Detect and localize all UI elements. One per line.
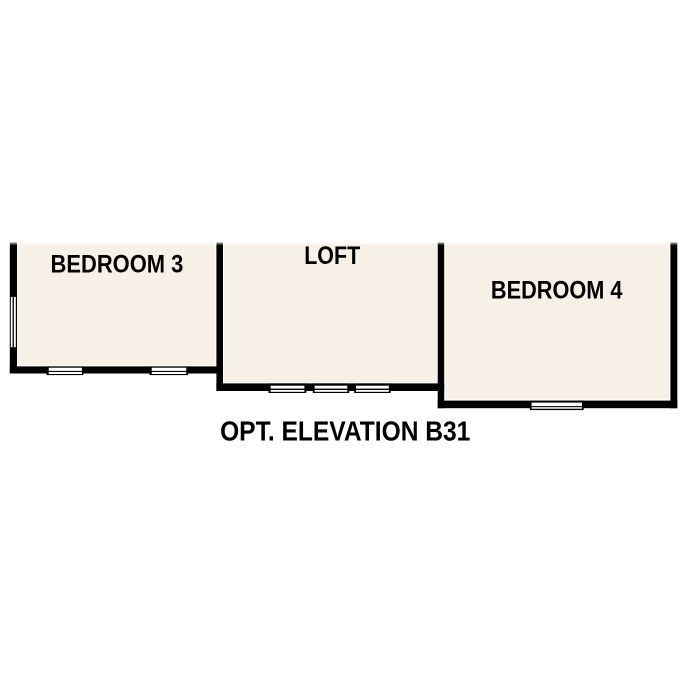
svg-text:BEDROOM 4: BEDROOM 4	[491, 276, 623, 304]
svg-text:OPT. ELEVATION B31: OPT. ELEVATION B31	[220, 415, 470, 447]
svg-text:BEDROOM 3: BEDROOM 3	[51, 251, 184, 279]
svg-text:LOFT: LOFT	[304, 241, 360, 269]
